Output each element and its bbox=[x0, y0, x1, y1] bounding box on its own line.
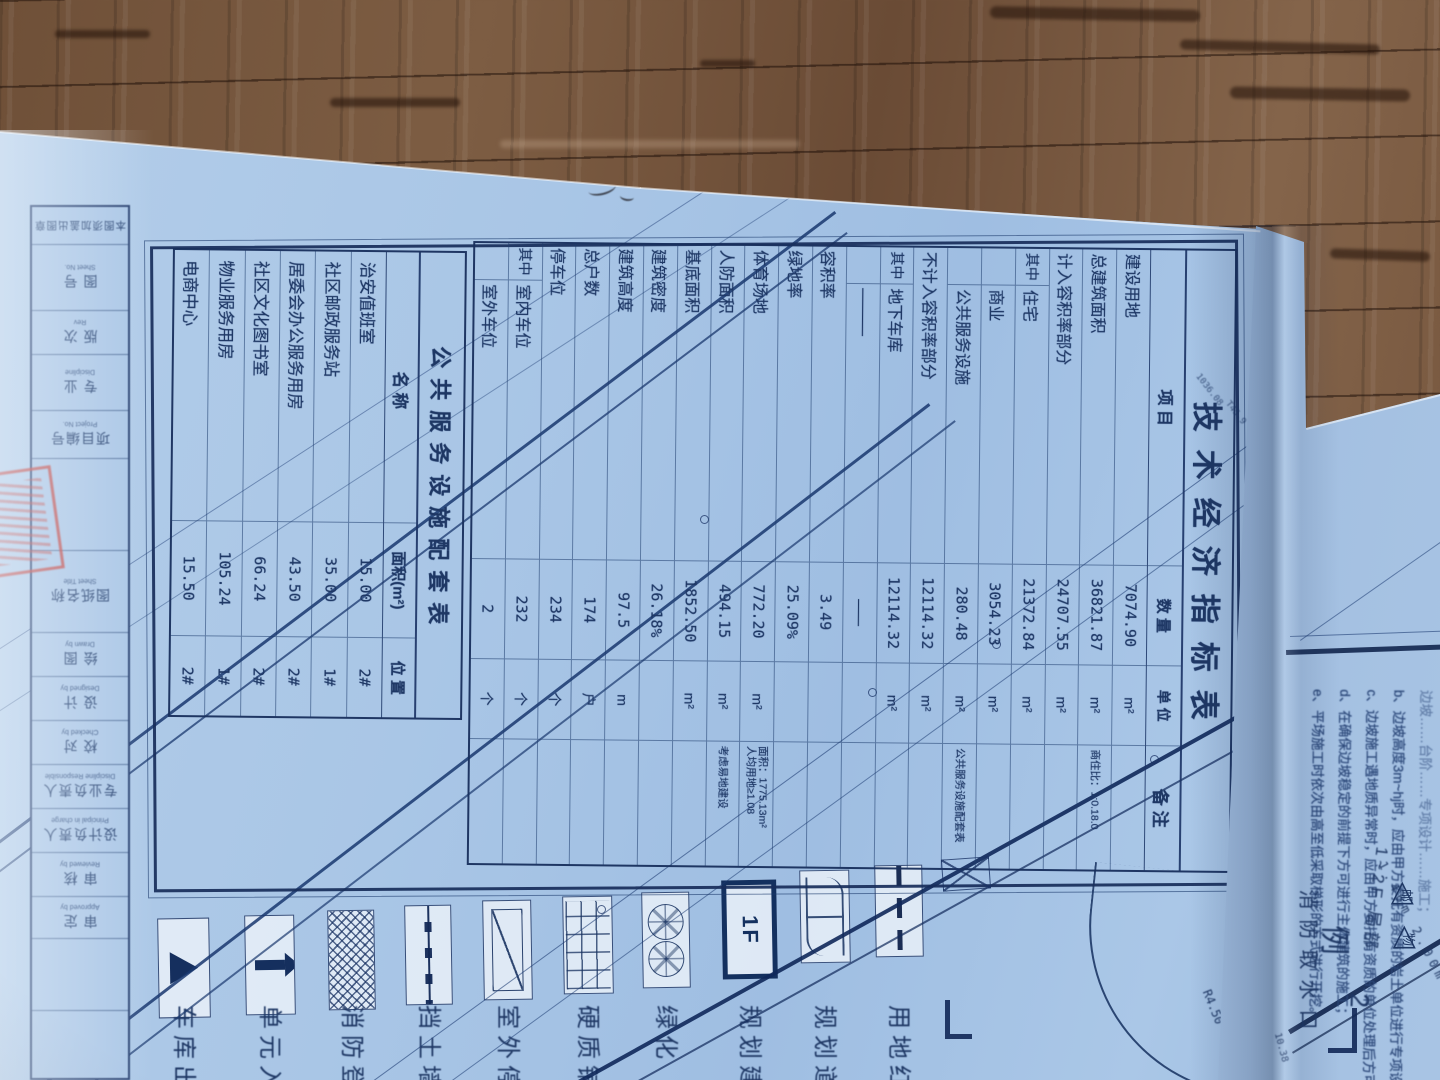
wood-grain-streak bbox=[1230, 86, 1410, 101]
name-cell: 居委会办公服务用房 bbox=[278, 251, 315, 521]
table-row: 社区文化图书室66.242# bbox=[241, 251, 281, 716]
title-block-label-zh: 专业负责人 bbox=[43, 781, 118, 801]
unit-cell: 个 bbox=[470, 658, 504, 738]
qty-cell: 772.20 bbox=[741, 561, 775, 661]
item-cell: 室外车位 bbox=[472, 279, 508, 558]
group-cell bbox=[948, 248, 981, 284]
title-block-label-zh: 专 业 bbox=[63, 377, 98, 397]
wood-grain-streak bbox=[330, 98, 460, 107]
item-cell: 绿地率 bbox=[776, 246, 812, 561]
table-row: 基底面积1852.50m² bbox=[672, 245, 712, 865]
title-block-cell: 图 号Sheet No. bbox=[32, 245, 128, 311]
fire-access-icon bbox=[327, 910, 376, 1011]
table-row: 室外车位2个 bbox=[469, 243, 509, 863]
remark-cell: 面积：1775.13m² 人均用地≥1.08 bbox=[739, 741, 773, 866]
remark-cell bbox=[638, 740, 672, 865]
unit-cell: m² bbox=[1011, 664, 1045, 744]
group-cell: 其中 bbox=[509, 243, 542, 279]
title-block-label-en: Principal in charge bbox=[51, 817, 109, 824]
unit-cell: 个 bbox=[504, 658, 538, 738]
garage-entry-icon bbox=[157, 918, 211, 1019]
pencil-mark bbox=[587, 179, 617, 198]
title-block-cell: 审 定Approved by bbox=[32, 897, 128, 939]
table-row: 停车位234个 bbox=[536, 244, 576, 864]
wood-grain-streak bbox=[55, 30, 150, 38]
title-block-label-zh: 本图须加盖出图章 bbox=[34, 218, 126, 233]
qty-cell: 36821.87 bbox=[1079, 564, 1113, 664]
remark-cell bbox=[908, 743, 942, 868]
title-block-cell: 设 计Designed by bbox=[32, 677, 128, 721]
unit-cell: 户 bbox=[572, 659, 606, 739]
post-flag-icon: ◁ 邮 bbox=[1392, 878, 1426, 908]
title-block-cell: 项目编号Project No. bbox=[32, 411, 128, 459]
service-facilities-table: 公共服务设施配套表 名 称 面积(m²) 位 置 治安值班室15.002#社区邮… bbox=[168, 248, 467, 720]
legend-label: 消防登高面 bbox=[332, 1005, 372, 1080]
qty-cell: 174 bbox=[572, 559, 606, 659]
item-cell: 体育场地 bbox=[742, 246, 778, 561]
item-cell: ——— bbox=[844, 283, 880, 562]
position-cell: 2# bbox=[241, 636, 276, 716]
road-line bbox=[1300, 520, 1440, 641]
qty-cell: 12114.32 bbox=[910, 563, 944, 663]
remark-cell bbox=[1010, 744, 1044, 869]
title-block-label-zh: 版 次 bbox=[63, 327, 98, 347]
item-cell: 商业 bbox=[979, 284, 1015, 563]
qty-cell: 12114.32 bbox=[877, 562, 911, 662]
unit-cell: m bbox=[605, 659, 639, 739]
title-block-cell bbox=[32, 1011, 128, 1080]
wood-grain-streak bbox=[700, 60, 755, 67]
position-cell: 2# bbox=[276, 636, 311, 716]
col-area: 面积(m²) bbox=[383, 522, 416, 637]
col-qty: 数 量 bbox=[1147, 565, 1182, 665]
title-block-label-zh: 图 号 bbox=[63, 272, 98, 292]
table-row: 建筑密度26.18% bbox=[638, 245, 678, 865]
title-block-cell: 专 业Discipline bbox=[32, 355, 128, 411]
position-cell: 1# bbox=[205, 635, 240, 715]
title-block-cell bbox=[32, 939, 128, 1011]
panel-frame-line bbox=[1286, 644, 1440, 655]
table-row: 建筑高度97.5m bbox=[604, 244, 644, 864]
title-block-label-zh: 设 计 bbox=[63, 693, 98, 713]
table-row: 物业服务用房105.241# bbox=[205, 250, 245, 715]
table-row: 其中地下车库12114.32m² bbox=[874, 247, 914, 867]
item-cell: 总户数 bbox=[573, 244, 609, 559]
title-block-label-zh: 校 对 bbox=[63, 737, 98, 757]
area-cell: 43.50 bbox=[277, 521, 313, 636]
unit-cell bbox=[808, 662, 842, 742]
area-cell: 35.00 bbox=[312, 521, 348, 636]
qty-cell: 97.5 bbox=[606, 559, 640, 659]
legend-label: 规划建筑 bbox=[730, 1005, 770, 1080]
remark-cell bbox=[536, 739, 570, 864]
unit-cell: m² bbox=[741, 661, 775, 741]
flag-char: 邮 bbox=[1398, 889, 1417, 902]
blueprint-photo: { "main_table": { "title": "技术经济指标表", "c… bbox=[0, 0, 1440, 1080]
area-cell: 66.24 bbox=[242, 521, 278, 636]
title-block-label-en: Designed by bbox=[61, 685, 100, 692]
pencil-mark bbox=[619, 191, 634, 202]
name-cell: 社区邮政服务站 bbox=[313, 251, 350, 521]
unit-entry-icon bbox=[244, 915, 296, 1016]
table-row: 总户数174户 bbox=[570, 244, 610, 864]
remark-cell bbox=[469, 738, 503, 863]
table-row: 社区邮政服务站35.001# bbox=[311, 251, 351, 716]
table-row: 绿地率25.09% bbox=[773, 246, 813, 866]
road-number-label: 10.38 bbox=[1272, 1032, 1290, 1064]
survey-point bbox=[597, 905, 606, 914]
position-cell: 2# bbox=[170, 635, 205, 715]
table-row: 其中室内车位232个 bbox=[503, 243, 543, 863]
qty-cell: 25.09% bbox=[775, 561, 809, 661]
qty-cell: 3.49 bbox=[809, 562, 843, 662]
remark-cell bbox=[503, 738, 537, 863]
item-cell: 建筑密度 bbox=[641, 245, 677, 560]
item-cell: 室内车位 bbox=[506, 279, 542, 558]
remark-cell bbox=[976, 743, 1010, 868]
item-cell: 总建筑面积 bbox=[1080, 249, 1116, 564]
group-cell: 其中 bbox=[880, 247, 913, 283]
table-row: 计入容积率部分24707.55m² bbox=[1043, 249, 1083, 869]
item-cell: 不计入容积率部分 bbox=[911, 248, 947, 563]
item-cell: 建设用地 bbox=[1114, 250, 1150, 565]
table-header: 项 目 数 量 单 位 备 注 bbox=[1144, 250, 1185, 870]
remark-cell bbox=[874, 742, 908, 867]
greenery-icon bbox=[641, 892, 691, 989]
title-block-cell: 设计负责人Principal in charge bbox=[32, 809, 128, 853]
unit-cell: 个 bbox=[538, 659, 572, 739]
qty-cell: 234 bbox=[539, 559, 573, 659]
table-row: 电商中心15.502# bbox=[170, 250, 210, 715]
group-cell bbox=[847, 247, 880, 283]
title-block-cell: 版 次Rev bbox=[32, 311, 128, 355]
blueprint-sheet: 车库出入口单元入口消防登高面挡土墙室外停车位硬质铺装绿化1F规划建筑规划道路用地… bbox=[0, 0, 1440, 1080]
position-cell: 1# bbox=[311, 636, 346, 716]
title-block-label-zh: 绘 图 bbox=[63, 649, 98, 669]
table-title: 技术经济指标表 bbox=[1179, 250, 1235, 870]
outdoor-parking-icon bbox=[482, 900, 533, 1001]
title-block-label-en: Discipline bbox=[65, 369, 95, 376]
title-block-cell: 绘 图Drawn by bbox=[32, 633, 128, 677]
table-row: 容积率3.49 bbox=[807, 247, 847, 867]
legend-label: 车库出入口 bbox=[164, 1005, 204, 1080]
group-label: 其中 bbox=[887, 251, 907, 279]
group-cell bbox=[475, 243, 508, 279]
table-title: 公共服务设施配套表 bbox=[414, 253, 465, 718]
area-cell: 15.50 bbox=[171, 520, 207, 635]
crosshatch-pattern bbox=[328, 911, 375, 1010]
qty-cell: 24707.55 bbox=[1045, 564, 1079, 664]
name-cell: 社区文化图书室 bbox=[243, 251, 280, 521]
legend-label: 单元入口 bbox=[250, 1005, 290, 1080]
title-block-cell: 校 对Checked by bbox=[32, 721, 128, 765]
qty-cell: 2 bbox=[471, 558, 505, 658]
item-cell: 人防面积 bbox=[709, 246, 745, 561]
unit-cell: m² bbox=[707, 660, 741, 740]
unit-cell: m² bbox=[1078, 664, 1112, 744]
table-row: —————— bbox=[841, 247, 881, 867]
unit-cell: m² bbox=[1112, 665, 1146, 745]
flag-char: 物 bbox=[1400, 933, 1419, 946]
legend-label: 规划道路 bbox=[805, 1005, 845, 1080]
title-block-label-zh: 项目编号 bbox=[50, 429, 110, 449]
remark-cell: 公共服务设施配套表 bbox=[942, 743, 976, 868]
title-block-label-en: Drawn by bbox=[65, 641, 95, 648]
qty-cell: 26.18% bbox=[640, 560, 674, 660]
legend-label: 用地红线 bbox=[879, 1005, 919, 1080]
title-block-label-zh: 图纸名称 bbox=[50, 586, 110, 606]
unit-cell: m² bbox=[943, 663, 977, 743]
note-line: d、在确保边坡稳定的前提下方可进行主体建筑的施工； bbox=[1328, 689, 1359, 1080]
remark-cell bbox=[672, 740, 706, 865]
col-position: 位 置 bbox=[382, 637, 415, 717]
svc-table-body: 治安值班室15.002#社区邮政服务站35.001#居委会办公服务用房43.50… bbox=[170, 250, 386, 717]
qty-cell: 7074.90 bbox=[1113, 565, 1147, 665]
wood-grain-streak bbox=[990, 6, 1200, 22]
area-cell: 105.24 bbox=[206, 520, 242, 635]
title-block-label-zh: 审 定 bbox=[63, 912, 98, 932]
title-block: 本图须加盖出图章图 号Sheet No.版 次Rev专 业Discipline项… bbox=[30, 205, 130, 1080]
name-cell: 电商中心 bbox=[172, 250, 209, 520]
title-block-label-en: Checked by bbox=[62, 729, 99, 736]
item-cell: 基底面积 bbox=[675, 245, 711, 560]
title-block-label-en: Reviewed by bbox=[60, 861, 100, 868]
fire-hydrant-label: 消防取水口 bbox=[1296, 890, 1325, 1080]
table-row: 公共服务设施280.48m²公共服务设施配套表 bbox=[942, 248, 982, 868]
item-cell: 停车位 bbox=[540, 244, 576, 559]
title-block-label-en: Rev bbox=[74, 319, 86, 326]
position-cell: 2# bbox=[347, 637, 382, 717]
col-unit: 单 位 bbox=[1146, 665, 1181, 745]
legend-label: 室外停车位 bbox=[488, 1005, 528, 1080]
qty-cell: ——— bbox=[843, 562, 877, 662]
name-cell: 物业服务用房 bbox=[207, 250, 244, 520]
parking-pattern bbox=[491, 909, 524, 992]
floor-tag: 1F bbox=[736, 914, 763, 944]
technical-indicators-table: 技术经济指标表 项 目 数 量 单 位 备 注 建设用地7074.90m²总建筑… bbox=[467, 241, 1237, 873]
table-row: 人防面积494.15m²考虑易地建设 bbox=[705, 246, 745, 866]
planned-building-icon: 1F bbox=[721, 880, 778, 980]
item-cell: 地下车库 bbox=[878, 283, 914, 562]
property-flag-icon: ◁ 物 bbox=[1394, 922, 1428, 952]
unit-cell bbox=[639, 660, 673, 740]
table-row: 不计入容积率部分12114.32m² bbox=[908, 248, 948, 868]
corner-bracket bbox=[945, 1000, 972, 1039]
remark-cell bbox=[1111, 745, 1145, 870]
group-cell: 其中 bbox=[1016, 249, 1049, 285]
main-table-body: 建设用地7074.90m²总建筑面积36821.87m²商住比：1:0.18.0… bbox=[469, 243, 1150, 870]
remark-cell: 商住比：1:0.18.0 bbox=[1077, 744, 1111, 869]
unit-cell: m² bbox=[909, 663, 943, 743]
table-header: 名 称 面积(m²) 位 置 bbox=[381, 252, 419, 717]
item-cell: 建筑高度 bbox=[607, 244, 643, 559]
qty-cell: 3054.23 bbox=[978, 563, 1012, 663]
wood-grain-streak bbox=[1180, 39, 1380, 54]
remark-cell bbox=[1043, 744, 1077, 869]
title-block-label-zh: 审 核 bbox=[63, 869, 98, 889]
tree-icon bbox=[648, 940, 685, 977]
title-block-label-en: Sheet No. bbox=[64, 264, 95, 271]
title-block-label-en: Discipline Responsible bbox=[45, 773, 115, 780]
qty-cell: 232 bbox=[505, 558, 539, 658]
name-cell: 治安值班室 bbox=[349, 252, 386, 522]
wall-pattern bbox=[405, 906, 452, 1005]
wood-grain-highlight bbox=[500, 140, 800, 148]
table-row: 居委会办公服务用房43.502# bbox=[276, 251, 316, 716]
remark-cell: 考虑易地建设 bbox=[705, 740, 739, 865]
unit-cell: m² bbox=[977, 663, 1011, 743]
title-block-cell: 专业负责人Discipline Responsible bbox=[32, 765, 128, 809]
table-row: 商业3054.23m² bbox=[976, 248, 1016, 868]
table-row: 其中住宅21372.84m² bbox=[1010, 249, 1050, 869]
legend-label: 挡土墙 bbox=[409, 1005, 449, 1080]
remark-cell bbox=[807, 742, 841, 867]
legend-number: 2 bbox=[1343, 993, 1374, 1009]
arrow-icon bbox=[255, 960, 285, 971]
wood-grain-streak bbox=[1330, 248, 1430, 261]
title-block-label-en: Approved by bbox=[60, 904, 99, 911]
table-row: 建设用地7074.90m² bbox=[1111, 250, 1150, 870]
remark-cell bbox=[773, 741, 807, 866]
title-block-label-en: Project No. bbox=[63, 421, 98, 428]
group-cell bbox=[982, 248, 1015, 284]
table-row: 总建筑面积36821.87m²商住比：1:0.18.0 bbox=[1077, 249, 1117, 869]
col-remark: 备 注 bbox=[1145, 745, 1180, 870]
table-row: 治安值班室15.002# bbox=[347, 252, 386, 717]
title-block-cell: 本图须加盖出图章 bbox=[32, 207, 128, 245]
remark-cell bbox=[841, 742, 875, 867]
remark-cell bbox=[570, 739, 604, 864]
unit-cell: m² bbox=[673, 660, 707, 740]
qty-cell: 494.15 bbox=[708, 560, 742, 660]
title-block-cell: 审 核Reviewed by bbox=[32, 853, 128, 897]
item-cell: 住宅 bbox=[1013, 285, 1049, 564]
unit-cell bbox=[842, 662, 876, 742]
legend-word: 例 bbox=[1314, 924, 1359, 956]
qty-cell: 21372.84 bbox=[1012, 564, 1046, 664]
group-label: 其中 bbox=[1022, 253, 1042, 281]
title-block-label-en: Sheet Title bbox=[63, 578, 96, 585]
item-cell: 容积率 bbox=[810, 247, 846, 562]
remark-cell bbox=[604, 739, 638, 864]
title-block-label-zh: 设计负责人 bbox=[43, 825, 118, 845]
col-name: 名 称 bbox=[384, 252, 419, 522]
unit-cell: m² bbox=[1045, 664, 1079, 744]
unit-cell: m² bbox=[876, 662, 910, 742]
qty-cell: 280.48 bbox=[944, 563, 978, 663]
area-cell: 15.00 bbox=[348, 522, 384, 637]
item-cell: 公共服务设施 bbox=[945, 284, 981, 563]
group-label: 其中 bbox=[515, 247, 535, 275]
unit-cell bbox=[774, 661, 808, 741]
table-row: 体育场地772.20m²面积：1775.13m² 人均用地≥1.08 bbox=[739, 246, 779, 866]
qty-cell: 1852.50 bbox=[674, 560, 708, 660]
item-cell: 计入容积率部分 bbox=[1047, 249, 1083, 564]
retaining-wall-icon bbox=[404, 905, 453, 1006]
col-item: 项 目 bbox=[1148, 250, 1185, 565]
site-marker-box bbox=[941, 856, 991, 891]
